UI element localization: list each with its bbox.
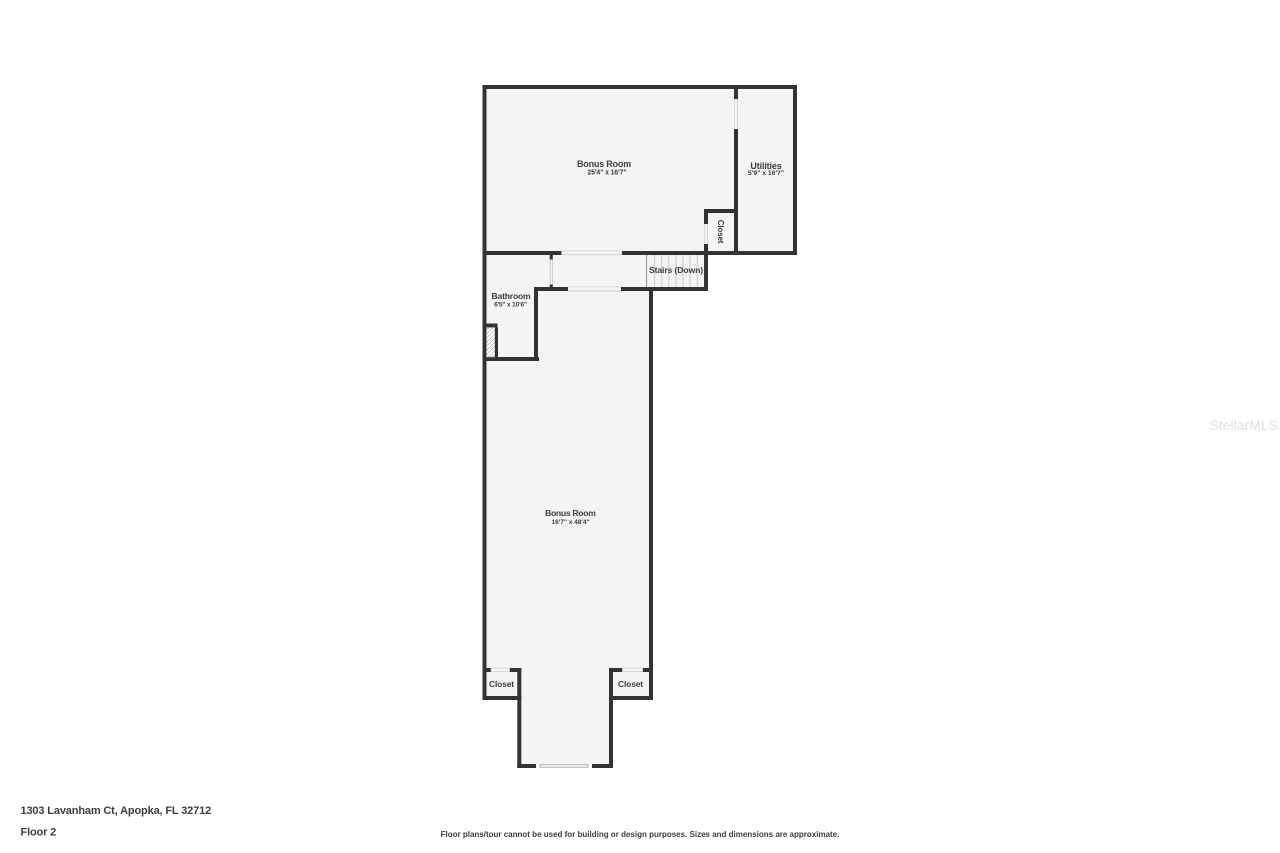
svg-text:6'5" x 10'6": 6'5" x 10'6" xyxy=(494,302,527,309)
svg-text:Bathroom: Bathroom xyxy=(492,291,532,301)
svg-text:Closet: Closet xyxy=(489,679,514,689)
svg-text:StellarMLS: StellarMLS xyxy=(1210,417,1278,433)
svg-text:Stairs (Down): Stairs (Down) xyxy=(649,265,703,275)
svg-text:Floor plans/tour cannot be use: Floor plans/tour cannot be used for buil… xyxy=(441,830,840,839)
svg-text:1303 Lavanham Ct, Apopka, FL 3: 1303 Lavanham Ct, Apopka, FL 32712 xyxy=(21,805,212,817)
svg-text:Floor 2: Floor 2 xyxy=(21,827,57,839)
svg-text:Bonus Room: Bonus Room xyxy=(577,159,631,169)
svg-text:25'4" x 16'7": 25'4" x 16'7" xyxy=(587,170,626,177)
svg-text:Bonus Room: Bonus Room xyxy=(545,508,596,518)
svg-text:Closet: Closet xyxy=(716,220,725,244)
svg-text:16'7" x 48'4": 16'7" x 48'4" xyxy=(552,519,590,526)
svg-text:Closet: Closet xyxy=(618,679,643,689)
svg-text:5'9" x 16'7": 5'9" x 16'7" xyxy=(748,170,784,177)
